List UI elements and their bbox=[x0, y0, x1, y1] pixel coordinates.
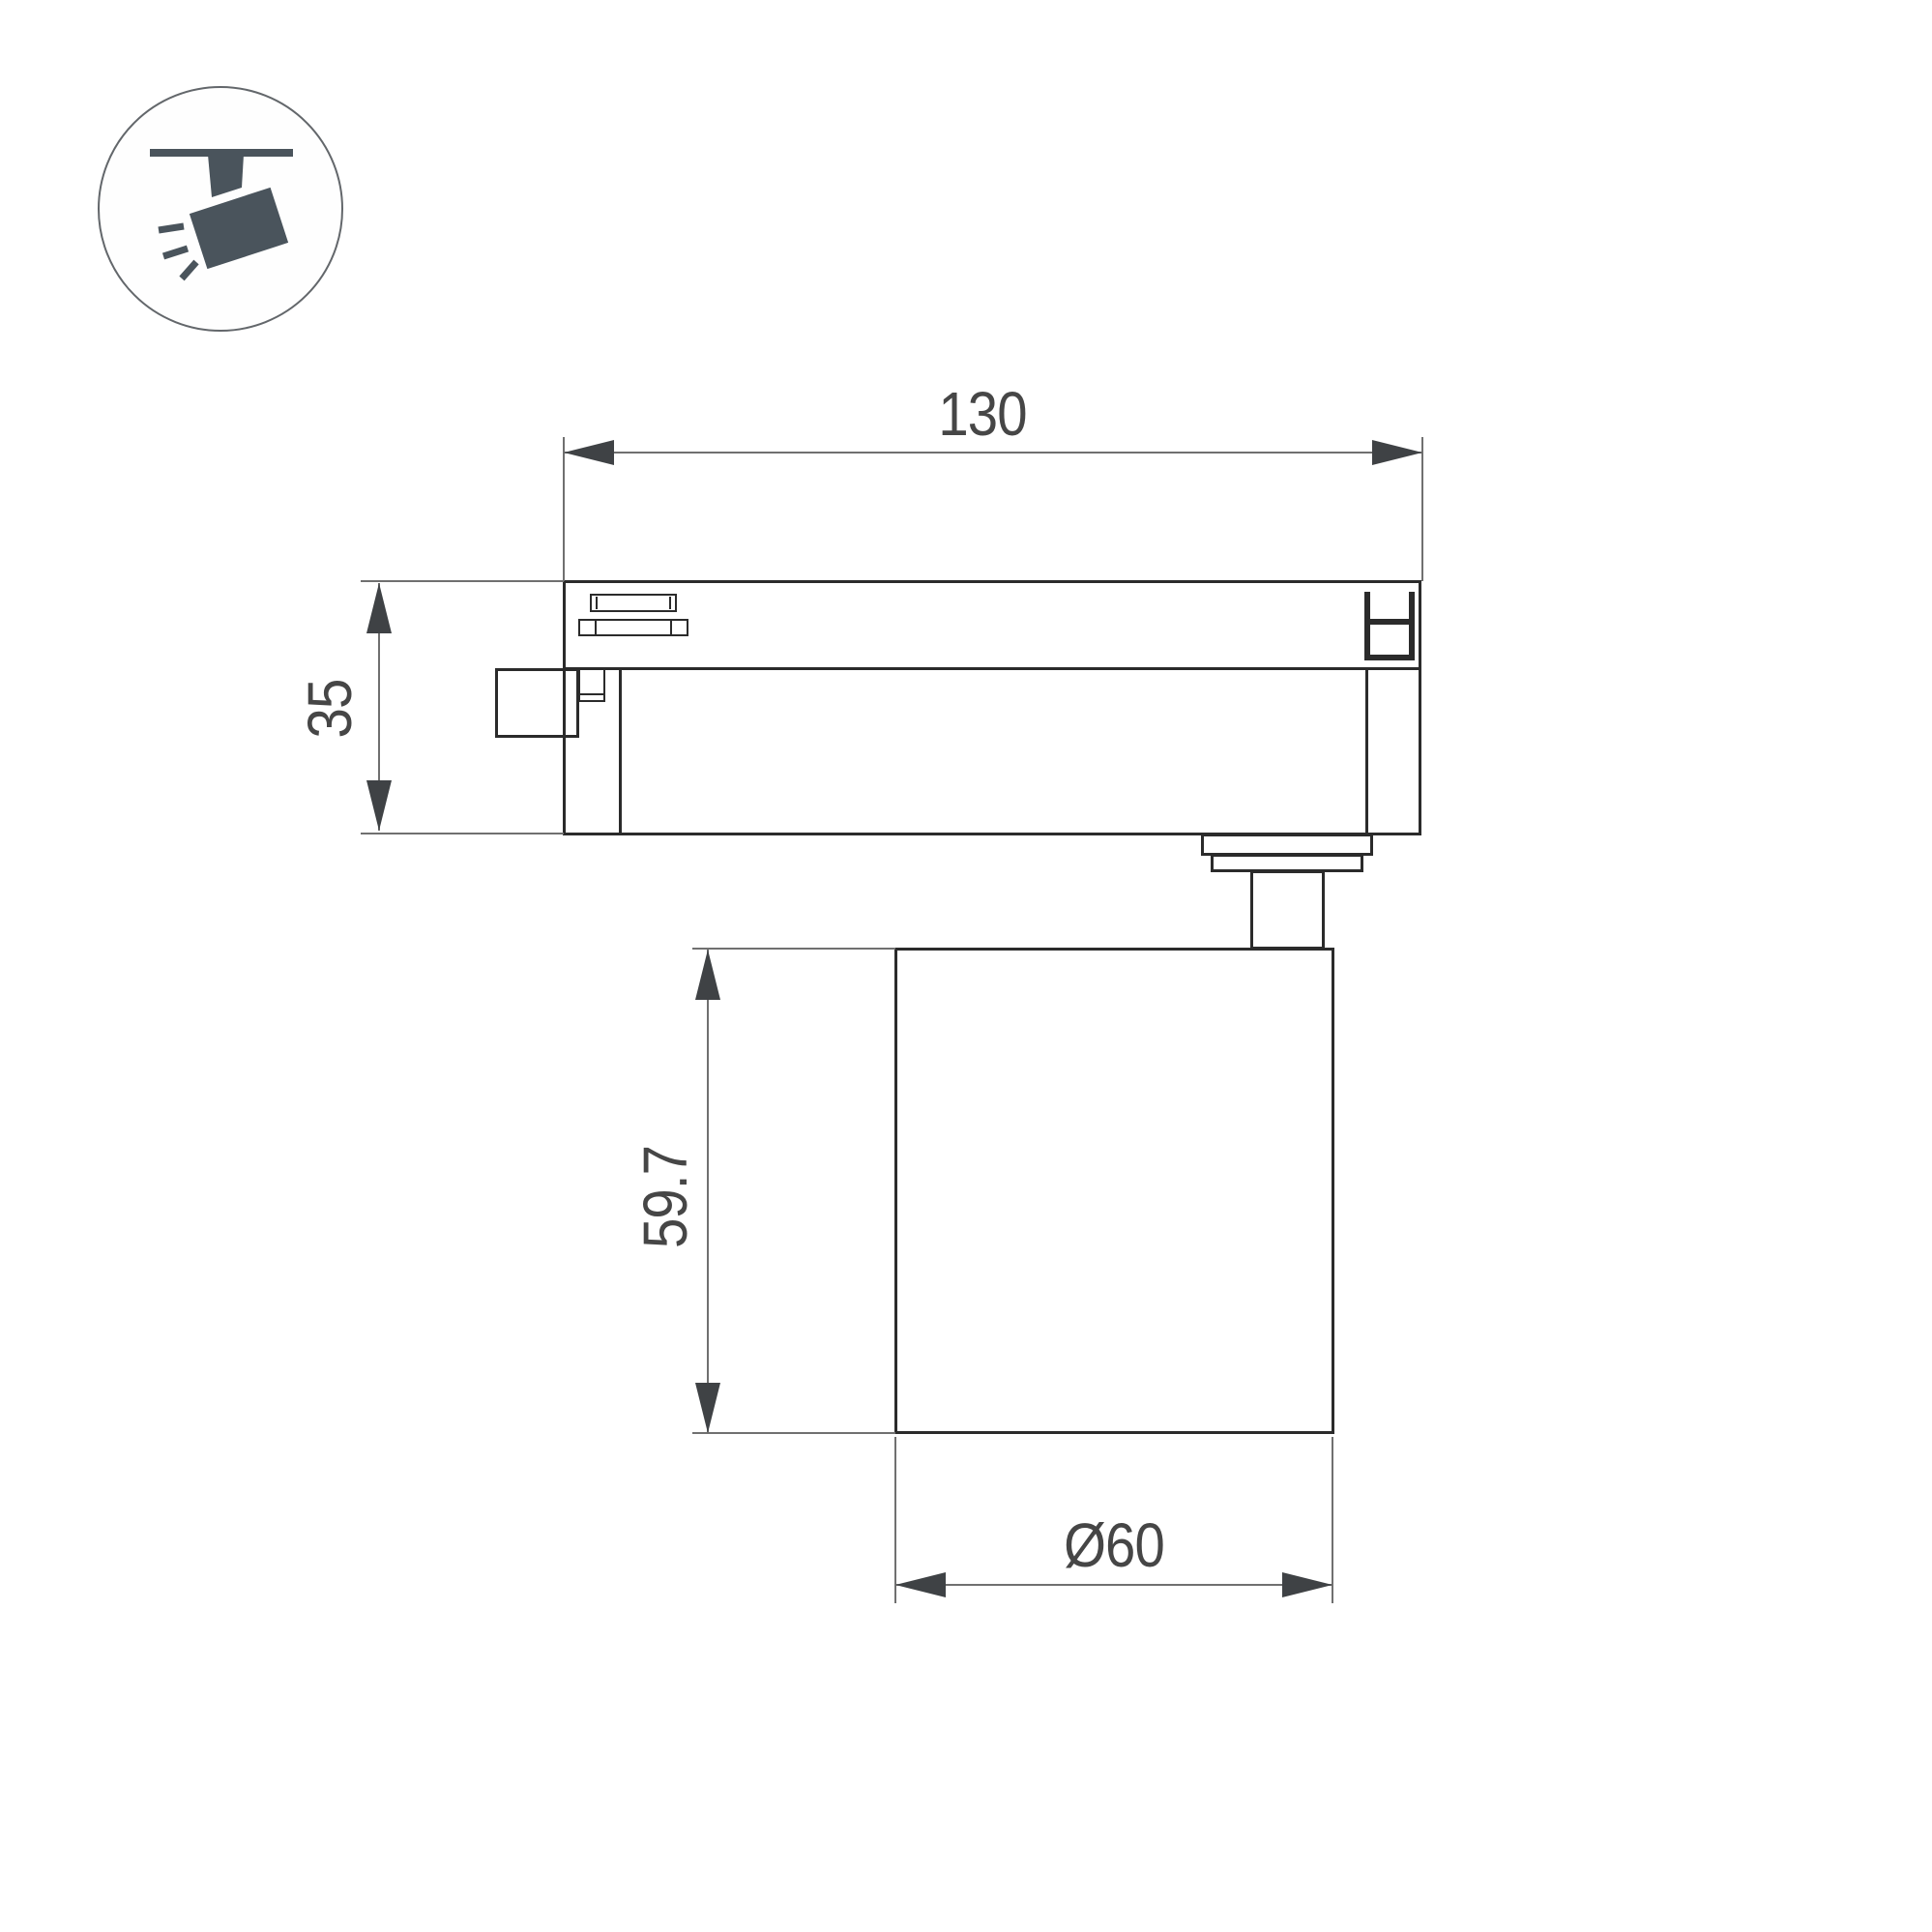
contact-slot-lower-divider-right bbox=[670, 621, 672, 634]
track-adapter-outline bbox=[563, 580, 1421, 835]
ground-hook-right-bar bbox=[1409, 592, 1415, 660]
dim-width-arrow-left bbox=[564, 440, 614, 465]
dim-diameter-line bbox=[895, 1584, 1332, 1586]
contact-slot-upper-tick-right bbox=[669, 597, 671, 609]
contact-slot-lower-divider-left bbox=[595, 621, 597, 634]
clip-latch-step bbox=[578, 668, 605, 695]
ground-hook-left-bar bbox=[1364, 592, 1370, 660]
dim-lamp-height-label: 59.7 bbox=[629, 1146, 701, 1248]
dim-diameter-arrow-left bbox=[895, 1572, 946, 1597]
dim-lamp-height-line bbox=[707, 950, 709, 1433]
dim-adapter-height-arrow-bottom bbox=[366, 780, 392, 831]
dim-diameter-label: Ø60 bbox=[1064, 1509, 1164, 1581]
dim-width-label: 130 bbox=[938, 378, 1026, 450]
ground-hook-crossbar bbox=[1370, 619, 1409, 625]
dim-lamp-height-ext-top bbox=[692, 948, 895, 950]
dim-lamp-height-arrow-top bbox=[695, 950, 720, 1000]
swivel-flange-upper bbox=[1201, 834, 1373, 856]
contact-slot-upper bbox=[590, 594, 677, 612]
ground-hook-bottom-bar bbox=[1364, 655, 1415, 660]
locking-clip bbox=[495, 668, 579, 738]
dim-adapter-height-arrow-top bbox=[366, 583, 392, 633]
dim-adapter-height-ext-top bbox=[361, 580, 564, 582]
swivel-flange-lower bbox=[1211, 854, 1363, 872]
dim-width-arrow-right bbox=[1372, 440, 1422, 465]
contact-slot-upper-tick-left bbox=[596, 597, 598, 609]
swivel-stem bbox=[1250, 870, 1325, 950]
dim-adapter-height-ext-bottom bbox=[361, 833, 564, 834]
adapter-inner-wall-left bbox=[619, 669, 622, 834]
dim-lamp-height-arrow-bottom bbox=[695, 1383, 720, 1433]
adapter-midline bbox=[563, 667, 1421, 670]
clip-latch-plate bbox=[578, 693, 605, 702]
adapter-inner-wall-right bbox=[1365, 669, 1368, 834]
dim-width-line bbox=[564, 452, 1421, 454]
icon-light-ray-1 bbox=[159, 226, 184, 230]
dim-lamp-height-ext-bottom bbox=[692, 1432, 895, 1434]
track-spotlight-icon bbox=[97, 85, 344, 333]
lamp-body bbox=[894, 948, 1334, 1434]
dim-adapter-height-label: 35 bbox=[294, 680, 366, 739]
technical-drawing-canvas: 130 35 59.7 Ø60 bbox=[0, 0, 1932, 1932]
dim-diameter-arrow-right bbox=[1282, 1572, 1332, 1597]
